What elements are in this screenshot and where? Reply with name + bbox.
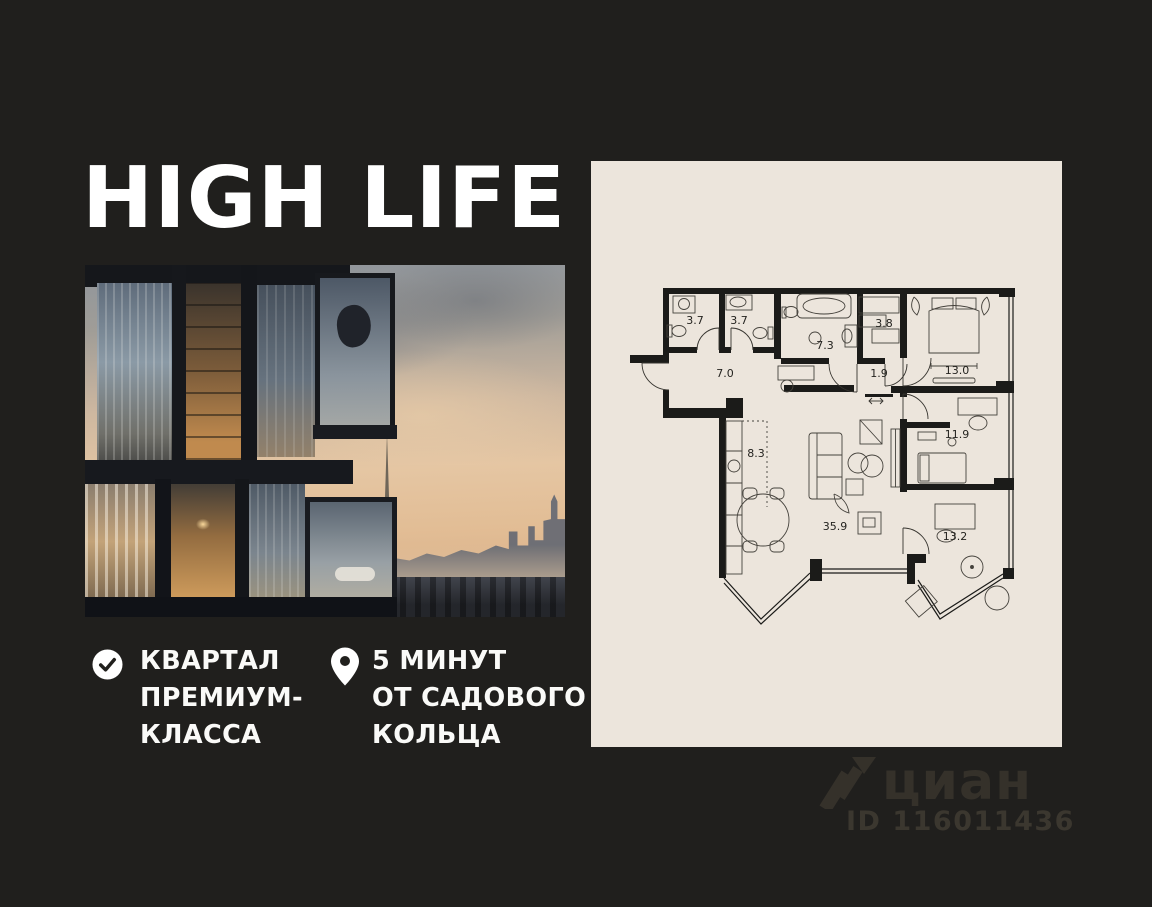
- balcony-rail: [313, 425, 397, 439]
- feature-location-line-2: ОТ САДОВОГО: [372, 680, 586, 717]
- building-window-f: [249, 484, 305, 599]
- room-label-bathroom-1: 3.7: [686, 314, 704, 327]
- feature-premium-line-2: ПРЕМИУМ-: [140, 680, 303, 717]
- feature-location: 5 МИНУТ ОТ САДОВОГО КОЛЬЦА: [372, 643, 586, 754]
- building-window-chandelier: [171, 484, 235, 599]
- room-label-bathroom-3: 7.3: [816, 339, 834, 352]
- building-column-b: [241, 265, 257, 477]
- feature-location-line-3: КОЛЬЦА: [372, 717, 586, 754]
- room-label-kitchen: 8.3: [747, 447, 765, 460]
- cian-brand-text: циан: [882, 752, 1032, 812]
- feature-premium-line-3: КЛАССА: [140, 717, 303, 754]
- floorplan-panel: 3.7 3.7 7.3 3.8 13.0 7.0 1.9 8.3 11.9 35…: [591, 161, 1062, 747]
- building-window-c: [257, 285, 315, 457]
- building-window-a: [97, 283, 172, 460]
- room-label-hallway: 7.0: [716, 367, 734, 380]
- check-icon: [92, 649, 123, 680]
- building-slab-middle: [85, 460, 353, 484]
- feature-premium-line-1: КВАРТАЛ: [140, 643, 303, 680]
- room-label-bathroom-2: 3.7: [730, 314, 748, 327]
- listing-id: ID 116011436: [846, 806, 1075, 837]
- building-base: [85, 597, 397, 617]
- building-window-lit-shelves: [186, 283, 241, 460]
- room-label-wardrobe: 3.8: [875, 317, 893, 330]
- pin-icon: [331, 647, 359, 686]
- project-logo: HIGH LIFE: [82, 149, 566, 248]
- windows: [724, 297, 1013, 624]
- building-glass-box-top: [315, 273, 395, 433]
- building-photo: [85, 265, 565, 617]
- room-label-cabinet: 13.2: [943, 530, 968, 543]
- floorplan-drawing: 3.7 3.7 7.3 3.8 13.0 7.0 1.9 8.3 11.9 35…: [591, 161, 1062, 747]
- room-label-living-room: 35.9: [823, 520, 848, 533]
- room-label-bedroom-1: 13.0: [945, 364, 970, 377]
- cian-logo-icon: [818, 757, 876, 813]
- room-label-bedroom-2: 11.9: [945, 428, 970, 441]
- flyer-canvas: HIGH LIFE КВАРТАЛ ПРЕМИУМ-: [0, 0, 1152, 907]
- feature-premium: КВАРТАЛ ПРЕМИУМ- КЛАССА: [140, 643, 303, 754]
- building-column-a: [172, 265, 186, 472]
- feature-location-line-1: 5 МИНУТ: [372, 643, 586, 680]
- building-window-curtains: [85, 484, 155, 599]
- interior-sofa-highlight: [335, 567, 375, 581]
- room-label-corridor: 1.9: [870, 367, 888, 380]
